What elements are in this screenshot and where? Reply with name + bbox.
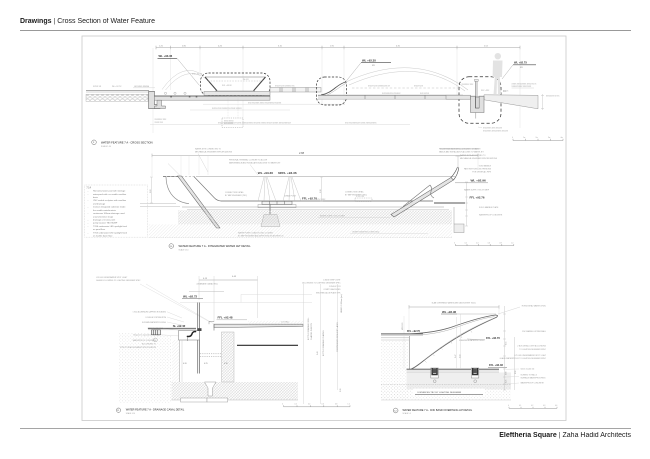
svg-text:WL +92.96: WL +92.96 <box>471 179 486 183</box>
svg-text:WATER JETS ACCORDING TO: WATER JETS ACCORDING TO <box>460 154 486 157</box>
svg-text:XXXX XXX: XXXX XXX <box>155 122 164 124</box>
svg-text:1.90: 1.90 <box>330 46 335 48</box>
svg-text:PART WITH DRILLED PERSONS: PART WITH DRILLED PERSONS <box>464 168 492 171</box>
svg-text:XXXXXXX XXX: XXXXXXX XXX <box>462 84 475 86</box>
svg-text:COMPRESSION RESILIENT LAYER: COMPRESSION RESILIENT LAYER <box>336 322 339 352</box>
svg-text:XXXX XXX XXXXXXX XXXX XXXXX: XXXX XXX XXXXXXX XXXX XXXXX <box>212 108 242 110</box>
svg-text:WL +93.36: WL +93.36 <box>159 54 173 58</box>
svg-text:HORIZONTAL WATER LEVEL: HORIZONTAL WATER LEVEL <box>522 305 546 308</box>
svg-text:0.2: 0.2 <box>465 242 467 244</box>
svg-text:0.4: 0.4 <box>476 242 478 244</box>
svg-text:3m: 3m <box>548 137 551 139</box>
svg-text:BOTTLE DRAINAGE CHANNEL: BOTTLE DRAINAGE CHANNEL <box>322 330 325 356</box>
svg-text:COMPLY ANODIZED: COMPLY ANODIZED <box>323 288 341 291</box>
svg-text:1.25: 1.25 <box>159 46 164 48</box>
svg-text:50mm marble tile: 50mm marble tile <box>521 367 535 370</box>
svg-text:TY03 underwater LED spotlight: TY03 underwater LED spotlight fixed <box>93 231 128 234</box>
svg-text:-: - <box>88 223 89 225</box>
svg-text:SCALE 1:5: SCALE 1:5 <box>403 412 411 415</box>
svg-text:0.3: 0.3 <box>543 405 545 407</box>
svg-text:0.8: 0.8 <box>335 404 337 406</box>
svg-text:DRAIN POINT: DRAIN POINT <box>285 194 297 197</box>
svg-text:XXXXXXXXX XXXXXXX: XXXXXXXXX XXXXXXX <box>512 86 532 88</box>
svg-text:XXXXXXXX: XXXXXXXX <box>224 123 234 125</box>
svg-text:1.0: 1.0 <box>511 242 513 244</box>
svg-text:XXX XXXXXX XXXX XXXXXXXX XXXXX: XXX XXXXXX XXXX XXXXXXXX XXXXX <box>248 102 282 104</box>
svg-text:CNC marble sculpture with over: CNC marble sculpture with overflow <box>93 199 127 202</box>
svg-text:-: - <box>88 207 89 209</box>
svg-text:continuous 100mm drainage cana: continuous 100mm drainage canal <box>93 212 125 215</box>
svg-text:XXXX XXX XXXXXXXX XX: XXXX XXX XXXXXXXX XX <box>368 86 391 88</box>
svg-text:FFL +92.48: FFL +92.48 <box>218 316 233 320</box>
svg-text:WATERPROOF CONCRETE: WATERPROOF CONCRETE <box>479 213 503 216</box>
svg-text:MECHANICAL ENGINEER SPECIFICAT: MECHANICAL ENGINEER SPECIFICATIONS <box>195 151 233 154</box>
svg-text:WL +93.3X: WL +93.3X <box>362 59 376 63</box>
svg-text:BY MEP ENGINEER (TBC): BY MEP ENGINEER (TBC) <box>225 195 247 197</box>
svg-text:-: - <box>88 194 89 196</box>
svg-text:CHANNEL INSERTS: CHANNEL INSERTS <box>310 322 313 340</box>
svg-text:0.2: 0.2 <box>295 404 297 406</box>
svg-text:(DRAINAGE CANAL/TBC): (DRAINAGE CANAL/TBC) <box>197 282 219 285</box>
svg-text:2.80: 2.80 <box>182 46 187 48</box>
svg-text:12: 12 <box>394 410 397 412</box>
svg-text:FFL +92.76: FFL +92.76 <box>470 196 485 200</box>
svg-text:FOR DRIVEN AC PIPE: FOR DRIVEN AC PIPE <box>472 171 491 174</box>
svg-text:0.56: 0.56 <box>505 342 507 345</box>
svg-text:XXX XXXX: XXX XXXX <box>420 93 430 95</box>
svg-text:0.45: 0.45 <box>232 276 237 278</box>
svg-text:XXX X: XXX X <box>503 91 509 93</box>
svg-text:around exterior shape: around exterior shape <box>93 215 114 218</box>
svg-text:CNC MARBLE LIP/RIM WALL: CNC MARBLE LIP/RIM WALL <box>522 330 546 333</box>
svg-text:-: - <box>88 213 89 215</box>
svg-text:0.26: 0.26 <box>505 380 507 383</box>
svg-text:CONNECTION DETAIL: CONNECTION DETAIL <box>225 191 244 194</box>
svg-text:Horizontal water pool with ste: Horizontal water pool with steelage <box>93 190 126 193</box>
svg-text:WATER FEATURE 7 A - CNC BASIN: WATER FEATURE 7 A - CNC BASIN OVERHANG L… <box>403 409 473 412</box>
svg-text:CONDUCTOR: CONDUCTOR <box>329 286 341 288</box>
svg-text:0.2: 0.2 <box>531 405 533 407</box>
svg-text:and drainage: and drainage <box>93 202 106 205</box>
svg-text:-: - <box>88 191 89 193</box>
svg-text:2.88: 2.88 <box>299 151 305 155</box>
svg-text:WL +92.96: WL +92.96 <box>442 310 457 314</box>
svg-text:XXX +XXX: XXX +XXX <box>481 90 490 92</box>
svg-text:basin: basin <box>93 197 99 199</box>
svg-text:on pond floor: on pond floor <box>93 228 105 231</box>
svg-text:0.60: 0.60 <box>150 190 152 194</box>
svg-text:XX: XX <box>520 67 523 69</box>
svg-text:XXXX XXX: XXXX XXX <box>414 86 424 88</box>
svg-text:DISTANCES TBC BY LIGHTING DESI: DISTANCES TBC BY LIGHTING DESIGNER <box>418 391 462 394</box>
svg-text:SCREED TO FALLS: SCREED TO FALLS <box>521 374 538 377</box>
svg-text:1m: 1m <box>523 137 526 139</box>
svg-text:XXX XXXXXXXXX XXXX XXXXXXXXX: XXX XXXXXXXXX XXXX XXXXXXXXX <box>345 123 377 125</box>
svg-text:WL +93.36: WL +93.36 <box>258 171 273 175</box>
svg-text:XXXX XXX XXXXXX XX: XXXX XXX XXXXXX XX <box>275 85 295 87</box>
svg-text:0.6: 0.6 <box>322 404 324 406</box>
svg-text:FFL +92.76: FFL +92.76 <box>407 330 421 333</box>
svg-text:X.XX X.XX: X.XX X.XX <box>356 196 365 198</box>
svg-text:0: 0 <box>454 242 455 244</box>
svg-text:WATER FEATURE 7 A - INTEGRATED: WATER FEATURE 7 A - INTEGRATED WATER JET… <box>179 244 252 248</box>
svg-text:WATER FEATURE 7 A - CROSS SECT: WATER FEATURE 7 A - CROSS SECTION <box>101 140 153 144</box>
svg-text:NANCE AND INSTALLATION ACCESS: NANCE AND INSTALLATION ACCESS TO WATER J… <box>439 151 485 154</box>
svg-text:TY0E underwater LED spotlight: TY0E underwater LED spotlight feed <box>93 225 128 228</box>
svg-text:WL +92.7X: WL +92.7X <box>514 61 527 65</box>
svg-text:XX: XX <box>372 65 375 67</box>
svg-text:10: 10 <box>170 246 173 248</box>
svg-text:XXXXXXX XX XX: XXXXXXX XX XX <box>546 96 560 98</box>
svg-text:on marble basin floor: on marble basin floor <box>93 235 113 238</box>
svg-text:XXXXXXX XXX XXXXX: XXXXXXX XXX XXXXX <box>483 127 503 129</box>
svg-text:-: - <box>88 226 89 228</box>
svg-text:drainage at recess point: drainage at recess point <box>93 219 116 222</box>
svg-text:XXXXXXXXX XXXXXX: XXXXXXXXX XXXXXX <box>382 93 401 95</box>
svg-text:XXXXXXX XXX: XXXXXXX XXX <box>155 119 168 121</box>
svg-text:0.6: 0.6 <box>488 242 490 244</box>
svg-text:0: 0 <box>508 405 509 407</box>
svg-text:1.36LM STRIP LIGHT: 1.36LM STRIP LIGHT <box>323 280 341 282</box>
svg-text:VARIES 1-300mm (min): VARIES 1-300mm (min) <box>340 293 343 313</box>
svg-text:0.8: 0.8 <box>499 242 501 244</box>
svg-text:0.4: 0.4 <box>308 404 310 406</box>
svg-text:4.35: 4.35 <box>396 46 401 48</box>
svg-text:PEDESTRIAN BARRIER ACCORDING T: PEDESTRIAN BARRIER ACCORDING TO MAINTE <box>439 148 481 151</box>
svg-text:9: 9 <box>93 142 95 144</box>
svg-text:MECHANICAL ENGINEER SPECIFICAT: MECHANICAL ENGINEER SPECIFICATIONS <box>460 157 498 160</box>
svg-text:L19 LED UNDERWATER SPOT LIGHT: L19 LED UNDERWATER SPOT LIGHT <box>96 276 128 279</box>
svg-text:SL +92.42: SL +92.42 <box>173 324 186 328</box>
svg-text:-: - <box>88 232 89 234</box>
svg-text:0.50: 0.50 <box>460 355 462 359</box>
svg-text:DOUBLE SYSTEM WITH: DOUBLE SYSTEM WITH <box>146 317 167 319</box>
svg-text:XXXX XXXX: XXXX XXXX <box>224 121 234 123</box>
svg-text:4m: 4m <box>561 137 564 139</box>
svg-text:PERSONAL TERMINAL CLOSURE TO A: PERSONAL TERMINAL CLOSURE TO ALLOW <box>229 159 267 162</box>
svg-text:GLASS WATERPROOF TO LIGHTING D: GLASS WATERPROOF TO LIGHTING DESIGNER SP… <box>500 357 547 360</box>
svg-text:0.47: 0.47 <box>455 355 457 359</box>
svg-text:FFL +92.76: FFL +92.76 <box>486 336 500 340</box>
svg-text:4.26: 4.26 <box>218 46 223 48</box>
svg-text:7.14: 7.14 <box>86 187 91 189</box>
svg-text:0.48: 0.48 <box>317 352 319 356</box>
svg-text:1.0: 1.0 <box>348 404 350 406</box>
svg-text:0.15: 0.15 <box>203 278 208 280</box>
svg-text:TO LIGHTING DESIGNER SPEC: TO LIGHTING DESIGNER SPEC <box>519 349 546 351</box>
svg-text:XXX +92.XX: XXX +92.XX <box>192 74 203 76</box>
svg-text:0.25: 0.25 <box>204 363 208 365</box>
svg-text:-: - <box>88 220 89 222</box>
svg-text:3.10: 3.10 <box>278 46 283 48</box>
svg-text:0.20: 0.20 <box>183 363 187 365</box>
svg-text:XXXX XX: XXXX XX <box>93 86 102 88</box>
svg-text:-: - <box>88 200 89 202</box>
svg-text:MIN 0.20: MIN 0.20 <box>402 323 404 330</box>
svg-text:2.52: 2.52 <box>484 46 489 48</box>
svg-text:2 BLK DETAIL LIGHT ACCORDING: 2 BLK DETAIL LIGHT ACCORDING <box>517 345 546 348</box>
svg-text:0.50: 0.50 <box>515 371 517 374</box>
svg-text:LYD LED UNDERWATER SPOT LIGHT: LYD LED UNDERWATER SPOT LIGHT <box>514 354 547 357</box>
svg-text:0: 0 <box>512 137 513 139</box>
svg-text:CONNECTION DETAIL: CONNECTION DETAIL <box>345 191 364 194</box>
svg-text:2m: 2m <box>536 137 539 139</box>
svg-text:0.35: 0.35 <box>224 363 228 365</box>
svg-text:SCALE 1:10: SCALE 1:10 <box>179 248 189 251</box>
svg-text:SUSTAIN WATERPROOFING: SUSTAIN WATERPROOFING <box>142 321 167 324</box>
svg-text:LTDD ALUMINIUM CAPPING ROUNDED: LTDD ALUMINIUM CAPPING ROUNDED <box>133 311 167 314</box>
svg-text:11: 11 <box>117 410 120 412</box>
svg-text:SOLID MARBLE PLATE: SOLID MARBLE PLATE <box>479 206 499 209</box>
svg-text:XXXX XXXXXXXX XXXX XX X: XXXX XXXXXXXX XXXX XX X <box>512 83 538 85</box>
svg-text:0.26: 0.26 <box>340 389 342 393</box>
svg-text:SURFACE WATERPROOFING: SURFACE WATERPROOFING <box>521 377 546 380</box>
svg-text:0: 0 <box>282 404 283 406</box>
svg-text:FFL +92.48: FFL +92.48 <box>489 363 503 367</box>
svg-text:ACCORDING TO LIGHTING DESIGNER: ACCORDING TO LIGHTING DESIGNER SPEC <box>302 282 341 285</box>
svg-text:the marble waterfountain: the marble waterfountain <box>93 209 117 212</box>
svg-text:XXXXXXX XXXXXXXX XXXXX: XXXXXXX XXXXXXXX XXXXX <box>483 130 509 132</box>
svg-text:GLASS FOLLOWING TO LIGHTING DE: GLASS FOLLOWING TO LIGHTING DESIGNER SPE… <box>96 279 141 282</box>
svg-text:NFFL +93.36: NFFL +93.36 <box>278 171 297 175</box>
svg-text:SCALE 1:50: SCALE 1:50 <box>101 145 111 148</box>
svg-text:WATER JETS CONNECTED TO: WATER JETS CONNECTED TO <box>195 148 222 151</box>
svg-text:0.08: 0.08 <box>505 372 507 375</box>
svg-text:XXL +93.3X: XXL +93.3X <box>222 85 232 87</box>
svg-text:waterproof with cnc marble ove: waterproof with cnc marble overflow <box>93 193 127 196</box>
svg-text:0.38: 0.38 <box>320 190 322 194</box>
svg-text:0.1: 0.1 <box>519 405 521 407</box>
svg-text:BOTTLE DRAINAGE GRILL: BOTTLE DRAINAGE GRILL <box>307 317 310 340</box>
svg-text:WATER FEATURE 7 A - DRAINAGE C: WATER FEATURE 7 A - DRAINAGE CANAL DETAI… <box>126 409 185 412</box>
svg-text:pump location TBU SUMP: pump location TBU SUMP <box>93 222 118 225</box>
svg-text:SLAB OVERHANG VARIES (MIN CANT: SLAB OVERHANG VARIES (MIN CANTILEVER 700… <box>432 302 477 305</box>
svg-text:WL +92.7X: WL +92.7X <box>112 86 122 88</box>
svg-text:morison integrated substrate i: morison integrated substrate inside <box>93 206 126 209</box>
svg-text:VOID MARBLE: VOID MARBLE <box>479 165 492 168</box>
svg-text:0.4: 0.4 <box>555 405 557 407</box>
svg-text:MAINTENANCE AND INSTALLATION A: MAINTENANCE AND INSTALLATION ACCESS TO W… <box>229 162 281 165</box>
svg-text:SCALE 1:10: SCALE 1:10 <box>126 412 135 415</box>
svg-text:WL +92.72: WL +92.72 <box>183 295 198 299</box>
svg-text:WATERPROOF CONCRETE: WATERPROOF CONCRETE <box>521 382 545 385</box>
svg-text:WL XX: WL XX <box>243 79 249 81</box>
